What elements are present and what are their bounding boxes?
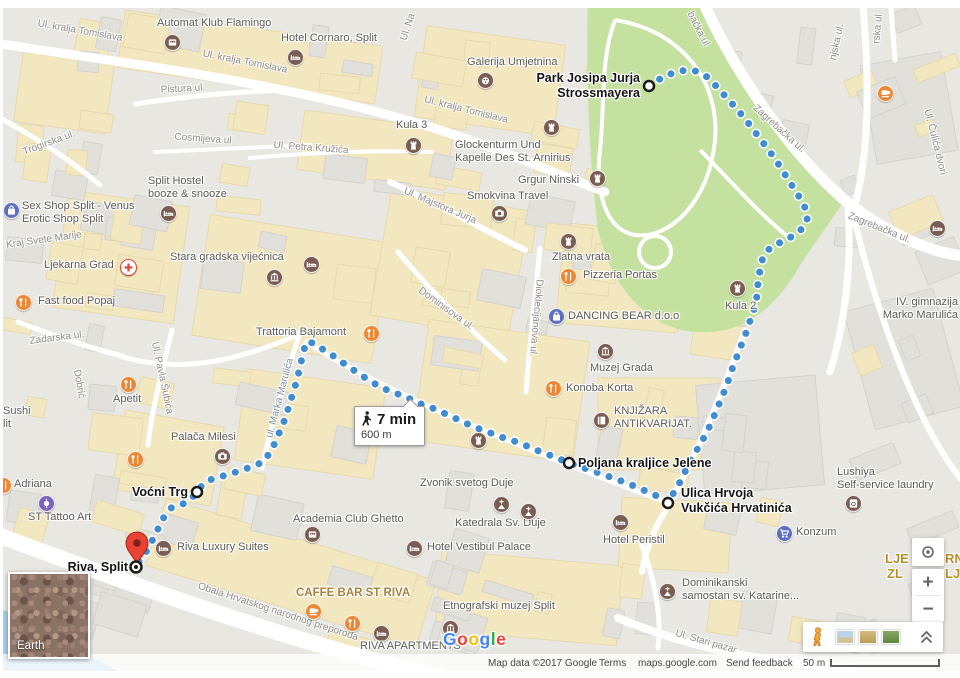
poi-label[interactable]: Konzum: [796, 526, 836, 539]
poi-icon-laundry[interactable]: [845, 495, 862, 512]
poi-icon-castle[interactable]: [560, 233, 577, 250]
poi-label[interactable]: CAFFE BAR ST RIVA: [296, 587, 410, 600]
poi-icon-museum[interactable]: [266, 269, 283, 286]
poi-label[interactable]: Zlatna vrata: [552, 251, 610, 264]
scale-label: 50 m: [803, 658, 825, 669]
zoom-out-button[interactable]: −: [912, 596, 944, 622]
route-waypoint-riva-split[interactable]: [131, 562, 142, 573]
attribution-bar: Map data ©2017 Google Terms maps.google.…: [0, 654, 960, 671]
top-margin: [0, 0, 960, 8]
poi-icon-food[interactable]: [344, 615, 361, 632]
poi-icon-hotel[interactable]: [160, 205, 177, 222]
poi-icon-castle[interactable]: [470, 432, 487, 449]
poi-label[interactable]: Grgur Ninski: [518, 174, 579, 187]
route-overlay[interactable]: [0, 0, 960, 678]
poi-icon-hotel[interactable]: [287, 49, 304, 66]
poi-icon-slot[interactable]: [164, 34, 181, 51]
route-waypoint-vocni-trg[interactable]: [192, 487, 202, 497]
scale-bar: [830, 659, 940, 667]
poi-label[interactable]: Dominikanskisamostan sv. Katarine...: [682, 577, 799, 603]
poi-label[interactable]: DANCING BEAR d.o.o: [568, 310, 679, 323]
poi-icon-camera[interactable]: [214, 448, 231, 465]
poi-label[interactable]: Sushilit: [3, 405, 31, 431]
poi-label[interactable]: Pizzeria Portas: [583, 269, 657, 282]
my-location-icon: [920, 544, 936, 560]
my-location-button[interactable]: [912, 538, 944, 566]
poi-icon-castle[interactable]: [589, 170, 606, 187]
poi-label[interactable]: Zvonik svetog Duje: [420, 477, 514, 490]
poi-icon-hotel[interactable]: [303, 256, 320, 273]
poi-icon-food[interactable]: [15, 294, 32, 311]
imagery-thumbnail-2[interactable]: [859, 630, 877, 644]
poi-label[interactable]: Muzej Grada: [590, 362, 653, 375]
poi-label[interactable]: Etnografski muzej Split: [443, 600, 555, 613]
poi-icon-pharmacy[interactable]: [120, 259, 137, 276]
poi-icon-castle[interactable]: [729, 280, 746, 297]
poi-icon-hotel[interactable]: [155, 540, 172, 557]
zoom-control: + −: [912, 569, 944, 622]
walking-person-icon: [361, 411, 373, 428]
poi-label[interactable]: Trattoria Bajamont: [256, 326, 346, 339]
poi-icon-hotel[interactable]: [612, 514, 629, 531]
poi-icon-cafe[interactable]: [877, 85, 894, 102]
poi-icon-museum[interactable]: [597, 343, 614, 360]
poi-label[interactable]: Galerija Umjetnina: [467, 56, 557, 69]
route-distance: 600 m: [361, 429, 416, 441]
poi-icon-food[interactable]: [120, 376, 137, 393]
poi-label[interactable]: Kula 2: [725, 300, 756, 313]
poi-icon-castle[interactable]: [543, 119, 560, 136]
left-margin: [0, 0, 3, 678]
terms-link[interactable]: Terms: [599, 658, 626, 669]
poi-icon-church[interactable]: [493, 496, 510, 513]
poi-label[interactable]: Academia Club Ghetto: [293, 513, 404, 526]
imagery-thumbnail-1[interactable]: [836, 630, 854, 644]
earth-label: Earth: [17, 640, 45, 652]
poi-icon-cafe[interactable]: [305, 603, 322, 620]
poi-icon-bag[interactable]: [548, 308, 565, 325]
route-time-bubble[interactable]: 7 min 600 m: [354, 406, 425, 446]
poi-label[interactable]: Konoba Korta: [566, 382, 633, 395]
poi-label[interactable]: Riva Luxury Suites: [177, 541, 269, 554]
poi-icon-food[interactable]: [127, 451, 144, 468]
poi-label[interactable]: IV. gimnazijaMarko Marulića: [883, 296, 958, 322]
poi-icon-camera[interactable]: [491, 205, 508, 222]
poi-icon-tattoo[interactable]: [38, 495, 55, 512]
poi-icon-cart[interactable]: [776, 525, 793, 542]
poi-label[interactable]: KNJIŽARAANTIKVARIJAT.: [614, 405, 692, 431]
zoom-in-button[interactable]: +: [912, 569, 944, 595]
poi-label[interactable]: ST Tattoo Art: [28, 511, 91, 524]
poi-icon-church[interactable]: [659, 583, 676, 600]
poi-label[interactable]: Adriana: [14, 478, 52, 491]
map-data-credit: Map data ©2017 Google: [488, 658, 597, 669]
route-waypoint-poljana-kraljice-jelene[interactable]: [564, 458, 574, 468]
poi-icon-book[interactable]: [593, 412, 610, 429]
poi-icon-hotel[interactable]: [373, 625, 390, 642]
destination-pin[interactable]: [126, 532, 148, 563]
poi-label[interactable]: Palača Milesi: [171, 431, 236, 444]
google-maps-app: Ul. kralja TomislavaUl. kralja Tomislava…: [0, 0, 960, 678]
bottom-margin: [0, 671, 960, 678]
send-feedback-link[interactable]: Send feedback: [726, 658, 793, 669]
poi-icon-food[interactable]: [560, 268, 577, 285]
poi-label[interactable]: Automat Klub Flamingo: [157, 17, 271, 30]
imagery-thumbnail-3[interactable]: [882, 630, 900, 644]
poi-label[interactable]: Hotel Peristil: [603, 534, 665, 547]
poi-icon-castle[interactable]: [405, 137, 422, 154]
poi-label[interactable]: Apetit: [113, 393, 141, 406]
route-waypoint-ulica-hrvoja-vukcica-hrvatinica[interactable]: [663, 498, 673, 508]
poi-icon-food[interactable]: [363, 325, 380, 342]
poi-label[interactable]: Hotel Cornaro, Split: [281, 32, 377, 45]
poi-label[interactable]: Hotel Vestibul Palace: [427, 541, 531, 554]
poi-label[interactable]: Fast food Popaj: [38, 295, 115, 308]
poi-label[interactable]: Ljekarna Grad: [44, 259, 114, 272]
poi-icon-hotel[interactable]: [406, 540, 423, 557]
poi-label[interactable]: Glockenturm UndKapelle Des St. Arnirius: [455, 139, 571, 165]
poi-icon-art[interactable]: [477, 72, 494, 89]
route-waypoint-park-josipa-jurja-strossmayera[interactable]: [644, 81, 654, 91]
poi-label[interactable]: Smokvina Travel: [467, 190, 548, 203]
google-logo[interactable]: Google: [443, 629, 506, 650]
poi-icon-hotel[interactable]: [929, 220, 946, 237]
poi-label[interactable]: Split Hostelbooze & snooze: [148, 175, 227, 201]
poi-label[interactable]: Sex Shop Split - VenusErotic Shop Split: [22, 200, 135, 226]
maps-google-link[interactable]: maps.google.com: [638, 658, 717, 669]
poi-icon-bag[interactable]: [3, 202, 20, 219]
poi-label[interactable]: Kula 3: [396, 119, 427, 132]
poi-label[interactable]: Stara gradska vijećnica: [170, 251, 284, 264]
poi-icon-church[interactable]: [520, 503, 537, 520]
poi-icon-food[interactable]: [545, 380, 562, 397]
poi-icon-slot[interactable]: [304, 526, 321, 543]
poi-label[interactable]: LushiyaSelf-service laundry: [837, 466, 934, 492]
pegman-icon[interactable]: [811, 627, 825, 647]
earth-preview-button[interactable]: Earth: [8, 572, 90, 659]
collapse-chevrons-icon[interactable]: [919, 629, 934, 645]
imagery-toolbar: [803, 622, 943, 652]
